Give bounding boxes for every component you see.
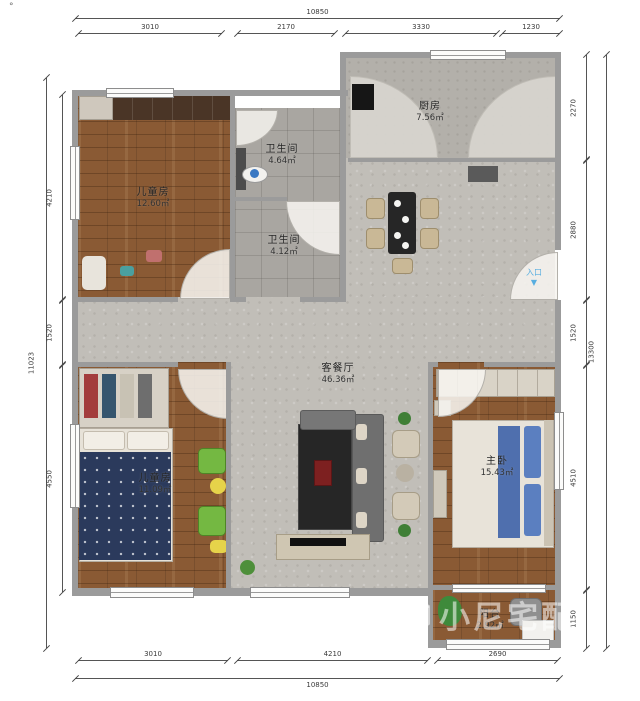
- dining-chair: [420, 198, 439, 219]
- wall: [230, 90, 235, 302]
- blanket-navy: [79, 452, 171, 560]
- toilet-lid: [250, 169, 259, 178]
- window: [446, 639, 550, 650]
- plant: [398, 524, 411, 537]
- washing-machine: [522, 620, 554, 641]
- corner-degree-mark: °: [9, 2, 14, 12]
- floor-corridor: [78, 297, 555, 367]
- window: [70, 146, 80, 220]
- dimension-right-seg: 4510: [586, 365, 587, 590]
- dimension-bottom-seg: 4210: [237, 660, 428, 661]
- room-label-bathroom-2: 卫生间 4.12㎡: [248, 234, 320, 258]
- entry-label: 入口 ▼: [514, 268, 554, 287]
- wall: [340, 52, 346, 302]
- dimension-left-seg: 4550: [62, 365, 63, 592]
- floor-plan-canvas: °: [0, 0, 640, 701]
- dining-chair: [420, 228, 439, 249]
- dimension-bottom-seg: 3010: [78, 660, 228, 661]
- armchair: [392, 492, 420, 520]
- dining-chair: [392, 258, 413, 274]
- coffee-table: [314, 460, 332, 486]
- armchair: [392, 430, 420, 458]
- console-table: [468, 166, 498, 182]
- room-label-bathroom-1: 卫生间 4.64㎡: [246, 143, 318, 167]
- wall: [226, 362, 231, 588]
- dimension-top-total: 10850: [75, 18, 560, 19]
- window: [70, 424, 80, 508]
- dimension-top-seg: 3010: [78, 33, 222, 34]
- headboard: [544, 420, 553, 546]
- window: [250, 587, 350, 598]
- plant: [398, 412, 411, 425]
- pillow: [83, 431, 125, 450]
- wall: [348, 158, 558, 162]
- pillow-blue: [524, 484, 541, 536]
- side-table: [396, 464, 414, 482]
- dimension-bottom-total: 10850: [75, 678, 560, 679]
- wall: [300, 297, 345, 302]
- stove: [352, 84, 374, 110]
- dimension-top-seg: 1230: [502, 33, 560, 34]
- rug: [82, 256, 106, 290]
- wall: [555, 52, 561, 250]
- pillow: [127, 431, 169, 450]
- room-label-master: 主卧 15.43㎡: [461, 455, 533, 479]
- kid-chair-green: [198, 448, 226, 474]
- dimension-left-seg: 4210: [62, 95, 63, 300]
- dimension-top-seg: 3330: [345, 33, 497, 34]
- dresser: [433, 470, 447, 518]
- window: [452, 584, 546, 593]
- dimension-left-seg: 1520: [62, 300, 63, 365]
- hanging-clothes: [120, 374, 134, 418]
- plate: [402, 216, 409, 223]
- toy-item: [146, 250, 162, 262]
- dresser: [79, 96, 113, 120]
- room-label-childroom-1: 儿童房 12.60㎡: [117, 186, 189, 210]
- dimension-right-seg: 2880: [586, 160, 587, 300]
- sofa-pillow: [356, 512, 367, 528]
- hanging-clothes: [102, 374, 116, 418]
- sofa-pillow: [356, 468, 367, 484]
- blanket-blue: [498, 426, 520, 538]
- plate: [402, 242, 409, 249]
- dimension-top-seg: 2170: [237, 33, 335, 34]
- tv: [290, 538, 346, 546]
- window: [554, 412, 564, 490]
- wall: [72, 362, 178, 367]
- plate: [394, 200, 401, 207]
- dimension-right-total: 13300: [606, 55, 607, 648]
- sofa-pillow: [356, 424, 367, 440]
- dining-chair: [366, 228, 385, 249]
- wall: [428, 362, 433, 588]
- hanging-clothes: [138, 374, 152, 418]
- dimension-left-total: 11023: [46, 78, 47, 648]
- room-label-living-dining: 客餐厅 46.36㎡: [302, 362, 374, 386]
- window: [110, 587, 194, 598]
- window: [106, 88, 174, 98]
- hanging-clothes: [84, 374, 98, 418]
- wall: [484, 362, 561, 367]
- wall: [72, 297, 178, 302]
- dimension-bottom-seg: 2690: [437, 660, 558, 661]
- kid-chair-green: [198, 506, 226, 536]
- room-label-kitchen: 厨房 7.56㎡: [394, 100, 466, 124]
- wardrobe: [112, 96, 230, 120]
- dimension-right-seg: 1150: [586, 590, 587, 648]
- plate: [394, 232, 401, 239]
- window: [430, 50, 506, 60]
- sofa-arm: [300, 410, 356, 430]
- toy-item: [120, 266, 134, 276]
- wall: [235, 197, 287, 201]
- room-label-childroom-2: 儿童房 11.09㎡: [119, 472, 191, 496]
- dimension-right-seg: 2270: [586, 55, 587, 160]
- dining-chair: [366, 198, 385, 219]
- plant: [240, 560, 255, 575]
- bean-bag-yellow: [210, 478, 226, 494]
- entry-text: 入口: [526, 268, 542, 277]
- entry-arrow-icon: ▼: [531, 278, 537, 287]
- wall: [428, 585, 433, 648]
- room-label-balcony: 阳台 2.92㎡: [454, 608, 526, 632]
